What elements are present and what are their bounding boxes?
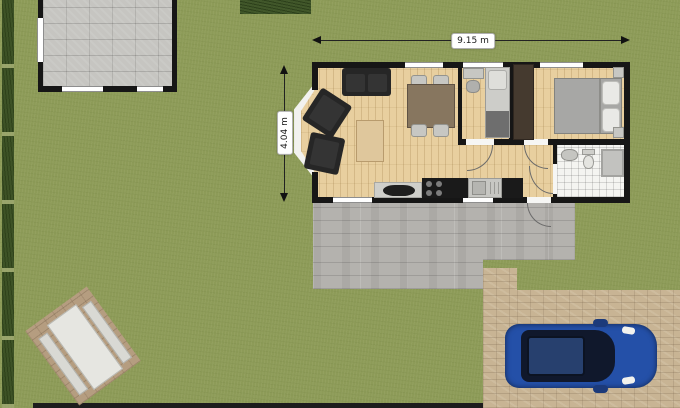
dim-arrow-left-icon [312,36,321,44]
stove-burner [436,190,442,196]
car-mirror-top [593,319,608,327]
drainer-line [494,182,495,194]
car-mirror-bottom [593,385,608,393]
window-bedroom1-top [540,62,583,68]
bed-pillow [602,81,620,105]
drainer-line [498,182,499,194]
garage-window-bottom-right [137,86,163,92]
sofa[interactable] [342,68,391,96]
toilet-bowl[interactable] [583,155,594,169]
nightstand-top[interactable] [613,67,624,78]
kitchen-sink-basin [383,185,415,196]
stove[interactable] [422,178,448,198]
dining-chair[interactable] [411,124,427,137]
kitchen-counter-mid[interactable] [448,178,468,198]
coffee-table[interactable] [356,120,384,162]
drainer-line [490,182,491,194]
bathroom-sink[interactable] [561,149,578,161]
dimension-label-width[interactable]: 9.15 m [451,33,495,49]
wall-left-upper [312,62,318,90]
car-sunroof [527,336,585,376]
double-bed[interactable] [554,78,622,134]
patio-deck-lower [313,255,483,289]
wardrobe[interactable] [513,64,534,140]
dim-arrow-up-icon [280,65,288,74]
dining-table[interactable] [407,84,455,128]
stove-burner [426,181,432,187]
garage-wall-right [172,0,177,92]
stove-burner [426,190,432,196]
bed-fold-line [599,79,601,133]
dim-arrow-right-icon [621,36,630,44]
wall-living-bedroom2 [458,62,462,139]
fence-bottom [33,403,483,408]
sink-basin-square [472,181,486,195]
single-bed-pillow [488,70,507,90]
desk[interactable] [463,68,484,79]
garage-floor[interactable] [43,0,172,88]
armchair-cushion [309,138,339,170]
nightstand-bottom[interactable] [613,127,624,138]
dimension-label-depth[interactable]: 4.04 m [277,111,293,155]
sofa-cushion [368,74,387,92]
window-living-top [405,62,443,68]
wall-left-lower [312,172,318,203]
shower[interactable] [601,149,624,177]
sofa-cushion [346,74,365,92]
window-kitchen-bottom [333,197,372,203]
stove-burner [436,181,442,187]
desk-chair[interactable] [466,80,480,93]
kitchen-counter-right[interactable] [502,178,523,198]
bush-top[interactable] [240,0,311,14]
dining-chair[interactable] [433,124,449,137]
kitchen-sink-unit[interactable] [468,178,502,198]
dim-arrow-down-icon [280,193,288,202]
hedge-left[interactable] [2,0,14,408]
garage-window-left [37,18,44,62]
floor-plan-scene: 9.15 m 4.04 m [0,0,680,408]
single-bed[interactable] [485,67,510,138]
garage-window-bottom-left [62,86,103,92]
wall-right [624,62,630,203]
car[interactable] [505,322,657,390]
single-bed-blanket [486,111,509,137]
